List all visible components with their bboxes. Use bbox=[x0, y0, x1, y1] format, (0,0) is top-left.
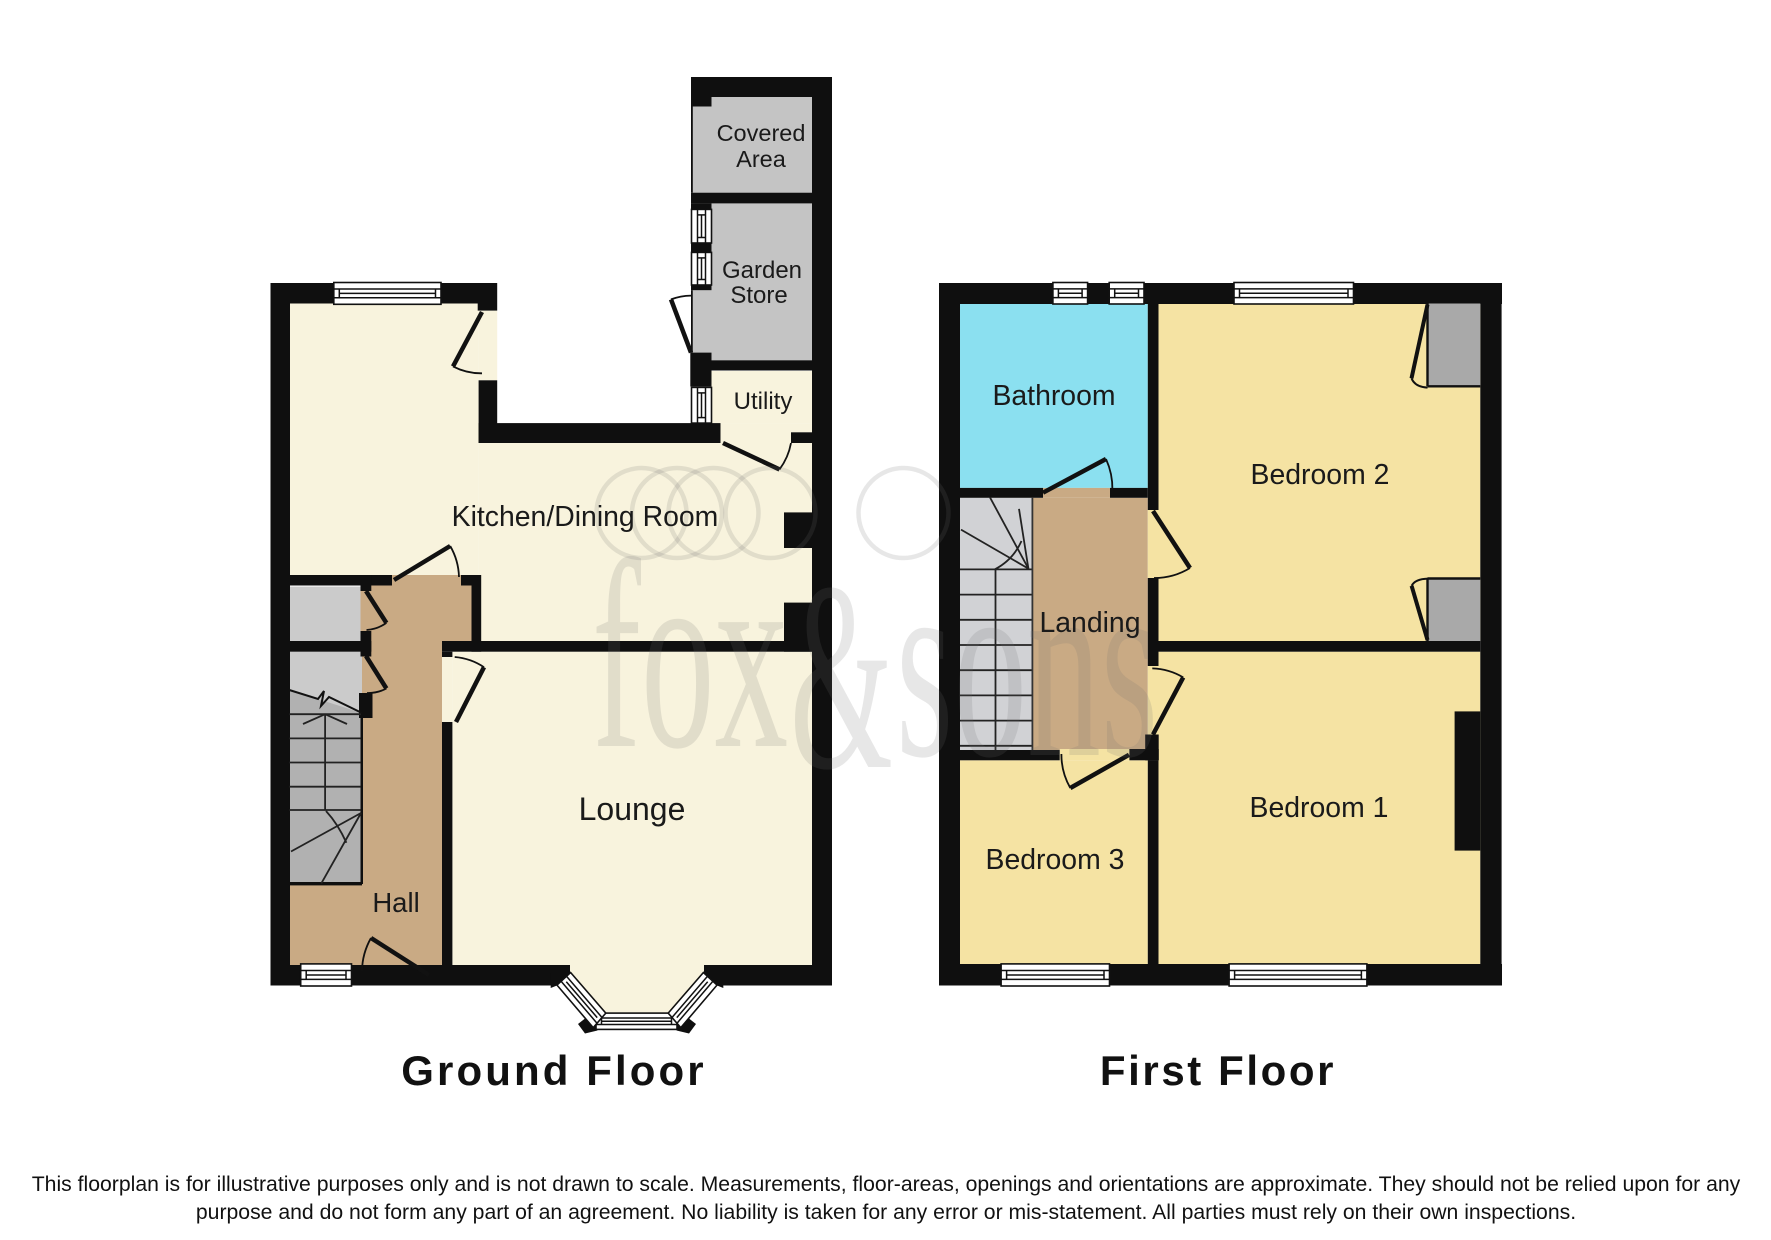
svg-text:Hall: Hall bbox=[372, 887, 419, 918]
svg-text:Lounge: Lounge bbox=[579, 791, 686, 827]
svg-text:Bedroom 1: Bedroom 1 bbox=[1250, 792, 1389, 824]
svg-text:Store: Store bbox=[730, 282, 787, 309]
svg-text:Kitchen/Dining Room: Kitchen/Dining Room bbox=[452, 501, 719, 533]
svg-text:Bedroom 2: Bedroom 2 bbox=[1251, 459, 1390, 491]
svg-text:First Floor: First Floor bbox=[1100, 1047, 1336, 1094]
svg-text:Bedroom 3: Bedroom 3 bbox=[986, 844, 1125, 876]
svg-text:Landing: Landing bbox=[1039, 607, 1140, 639]
svg-text:fox: fox bbox=[592, 506, 788, 805]
svg-text:Utility: Utility bbox=[734, 388, 793, 415]
svg-text:&: & bbox=[790, 527, 893, 825]
svg-text:Area: Area bbox=[736, 146, 787, 172]
svg-text:Bathroom: Bathroom bbox=[992, 380, 1115, 412]
svg-text:This floorplan is for illustra: This floorplan is for illustrative purpo… bbox=[32, 1173, 1741, 1196]
svg-text:Ground Floor: Ground Floor bbox=[401, 1047, 706, 1094]
svg-text:sons: sons bbox=[896, 515, 1158, 814]
svg-text:Garden: Garden bbox=[722, 257, 802, 284]
svg-text:purpose and do not form any pa: purpose and do not form any part of an a… bbox=[196, 1201, 1576, 1224]
svg-text:Covered: Covered bbox=[717, 120, 806, 146]
